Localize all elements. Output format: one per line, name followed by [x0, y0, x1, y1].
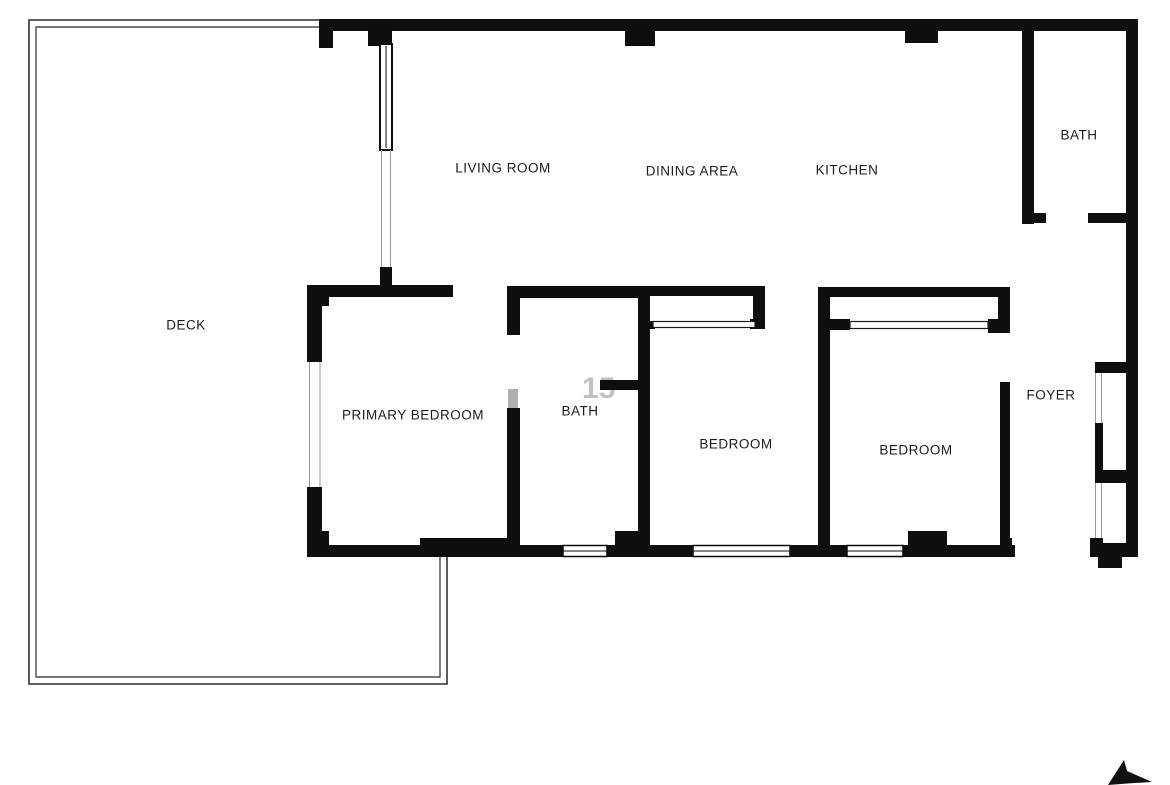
room-label-bedroom-east: BEDROOM: [879, 443, 952, 458]
room-label-foyer: FOYER: [1026, 388, 1075, 403]
floorplan-canvas: 15: [0, 0, 1170, 785]
room-label-living-room: LIVING ROOM: [455, 161, 551, 176]
upper-bath-walls: [1022, 19, 1128, 224]
room-label-deck: DECK: [166, 318, 206, 333]
room-label-primary-bedroom: PRIMARY BEDROOM: [342, 408, 484, 423]
floorplan-drawing: 15: [0, 0, 1170, 785]
room-label-kitchen: KITCHEN: [816, 163, 879, 178]
room-label-bath-middle: BATH: [561, 404, 598, 419]
bath-door-leaf: [508, 389, 518, 408]
deck-slider-opening: [382, 150, 391, 267]
north-arrow-icon: [1108, 760, 1152, 785]
living-room-west-window: [380, 44, 392, 150]
room-label-dining-area: DINING AREA: [646, 164, 739, 179]
room-label-bath-upper: BATH: [1060, 128, 1097, 143]
room-label-bedroom-west: BEDROOM: [699, 437, 772, 452]
